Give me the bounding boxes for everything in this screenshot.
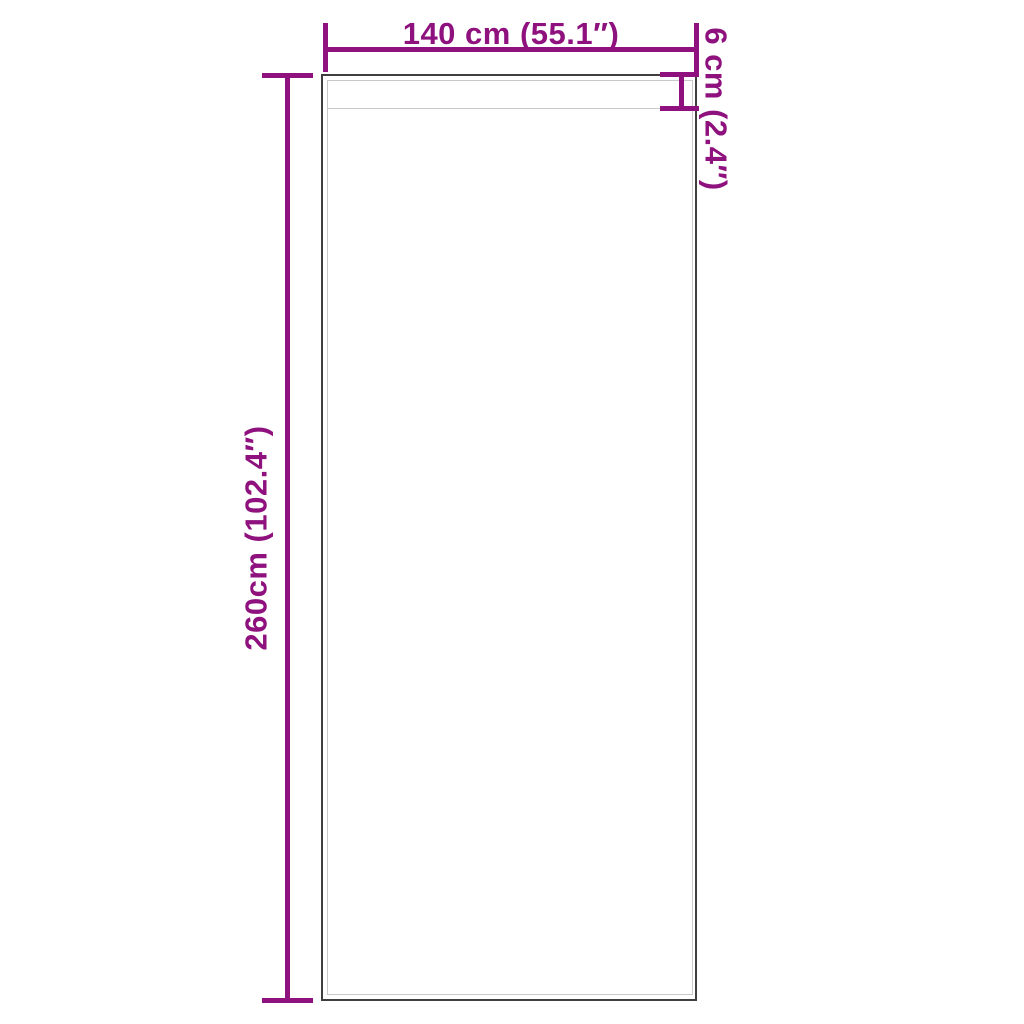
pocket-dimension-label: 6 cm (2.4″) bbox=[701, 27, 732, 190]
width-dimension-label: 140 cm (55.1″) bbox=[403, 18, 620, 49]
height-dimension-label: 260cm (102.4″) bbox=[241, 425, 272, 650]
height-dimension-tick-bottom bbox=[262, 998, 313, 1003]
product-inner-edge bbox=[327, 80, 693, 995]
height-dimension-tick-top bbox=[262, 73, 313, 78]
width-dimension-tick-left bbox=[323, 23, 328, 72]
rod-pocket-seam-line bbox=[327, 108, 693, 109]
product-dimension-diagram: 140 cm (55.1″) 260cm (102.4″) 6 cm (2.4″… bbox=[0, 0, 1024, 1024]
pocket-dimension-tick-bottom bbox=[660, 106, 699, 111]
height-dimension-line bbox=[285, 75, 290, 1001]
